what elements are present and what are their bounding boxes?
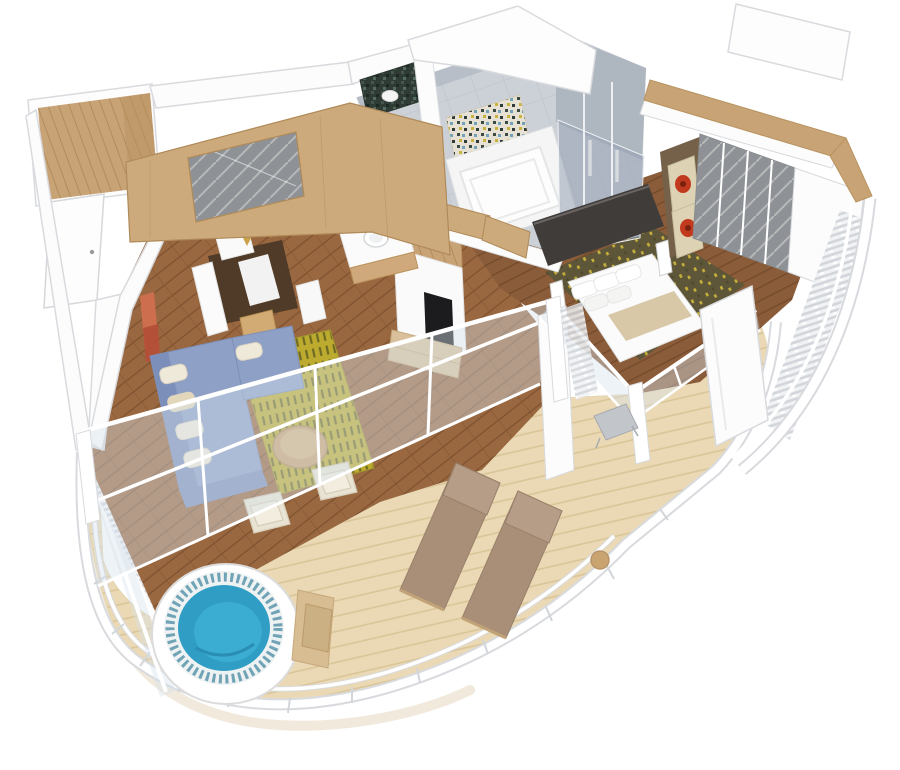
- floorplan-svg: [0, 0, 900, 770]
- door-handle: [90, 250, 94, 254]
- tub-steps: [292, 590, 334, 668]
- side-table: [591, 551, 609, 569]
- floorplan-image: [0, 0, 900, 770]
- hot-tub: [152, 564, 300, 704]
- toilet: [382, 91, 398, 102]
